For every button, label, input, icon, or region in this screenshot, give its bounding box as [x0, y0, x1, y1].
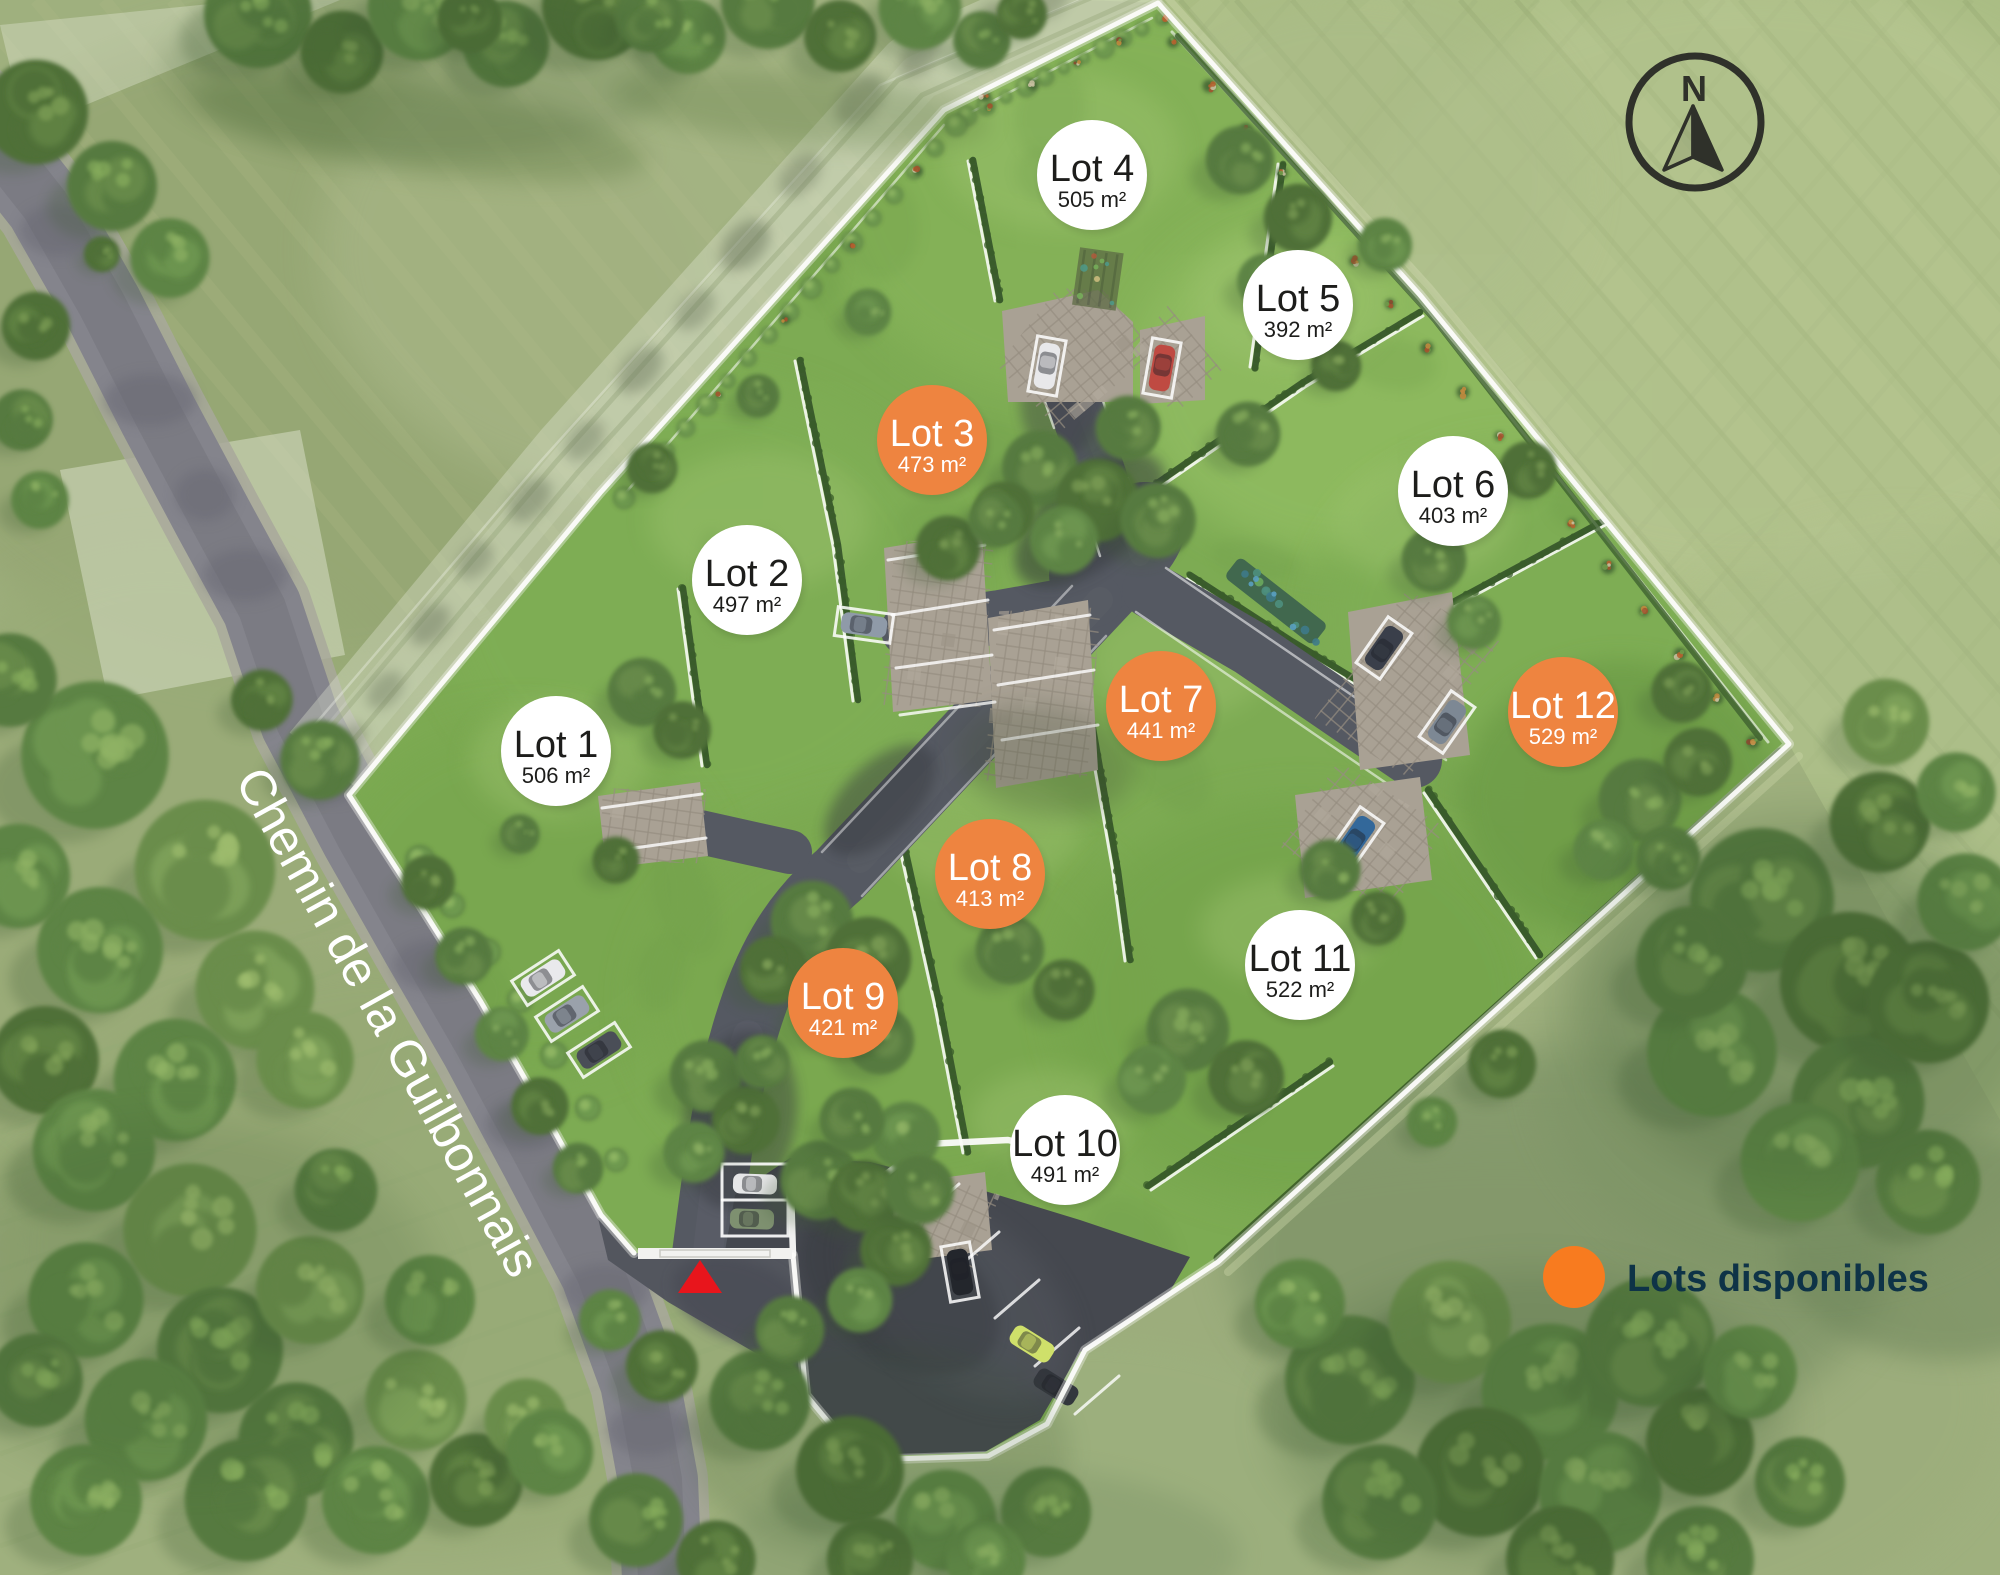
svg-text:497 m²: 497 m²	[713, 592, 781, 617]
svg-text:Lot 3: Lot 3	[890, 413, 975, 455]
svg-text:441 m²: 441 m²	[1127, 718, 1195, 743]
svg-text:Lot 4: Lot 4	[1050, 148, 1135, 190]
svg-text:413 m²: 413 m²	[956, 886, 1024, 911]
svg-text:Lot 6: Lot 6	[1411, 464, 1496, 506]
svg-text:Lot 1: Lot 1	[514, 724, 599, 766]
svg-text:529 m²: 529 m²	[1529, 724, 1597, 749]
svg-text:Lot 8: Lot 8	[948, 847, 1033, 889]
svg-text:Lot 5: Lot 5	[1256, 278, 1341, 320]
svg-text:473 m²: 473 m²	[898, 452, 966, 477]
svg-text:Lot 11: Lot 11	[1249, 938, 1352, 980]
svg-text:491 m²: 491 m²	[1031, 1162, 1099, 1187]
svg-text:506 m²: 506 m²	[522, 763, 590, 788]
svg-text:403 m²: 403 m²	[1419, 503, 1487, 528]
svg-text:421 m²: 421 m²	[809, 1015, 877, 1040]
svg-text:522 m²: 522 m²	[1266, 977, 1334, 1002]
svg-text:Lot 10: Lot 10	[1012, 1123, 1118, 1165]
svg-text:N: N	[1681, 68, 1707, 109]
svg-text:Lot 7: Lot 7	[1119, 679, 1204, 721]
svg-text:392 m²: 392 m²	[1264, 317, 1332, 342]
svg-text:Lots disponibles: Lots disponibles	[1627, 1258, 1929, 1300]
svg-text:Lot 2: Lot 2	[705, 553, 790, 595]
svg-text:Lot 9: Lot 9	[801, 976, 886, 1018]
svg-text:Lot 12: Lot 12	[1510, 685, 1616, 727]
svg-text:505 m²: 505 m²	[1058, 187, 1126, 212]
